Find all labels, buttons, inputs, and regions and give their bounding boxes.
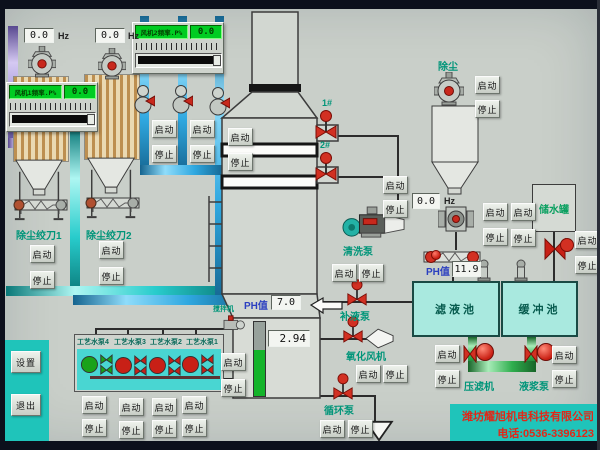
fan1-panel-value: 0.0 bbox=[64, 85, 96, 99]
buffer-tank: 缓冲池 bbox=[501, 281, 578, 337]
ph-sensor-dot bbox=[431, 250, 441, 260]
oxidation-fan-label: 氧化风机 bbox=[346, 348, 386, 363]
dust-hopper bbox=[430, 104, 482, 198]
filtrate-tank: 滤液池 bbox=[412, 281, 500, 337]
water-tank: 储水罐 bbox=[532, 184, 576, 232]
right-airlock-start-button[interactable]: 启动 bbox=[511, 203, 536, 221]
valve3-start-button[interactable]: 启动 bbox=[228, 128, 253, 146]
fan2-ruler bbox=[136, 43, 221, 50]
fan1-control-panel: 风机1频率.P% 0.0 bbox=[6, 82, 98, 132]
slurry-valve-icon bbox=[524, 345, 538, 363]
blower-icon-2 bbox=[98, 48, 126, 80]
fan1-panel-label: 风机1频率.P% bbox=[9, 85, 62, 99]
circulation-pump-start-button[interactable]: 启动 bbox=[320, 420, 345, 438]
company-name: 潍坊耀旭机电科技有限公司 bbox=[450, 409, 594, 426]
valve3-stop-button[interactable]: 停止 bbox=[228, 153, 253, 171]
screw-conveyor-icon-1 bbox=[11, 196, 69, 214]
fan-blade-icon bbox=[366, 328, 394, 349]
tower-ph-display: 7.0 bbox=[271, 295, 301, 310]
slurry-pump-label: 液浆泵 bbox=[519, 378, 549, 393]
flue-line-down bbox=[397, 135, 399, 210]
mixer-label: 搅拌机 bbox=[213, 304, 234, 314]
filtrate-tank-label: 滤液池 bbox=[435, 301, 477, 317]
process-pump3-label: 工艺水泵3 bbox=[114, 337, 146, 347]
slurry-pump-start-button[interactable]: 启动 bbox=[552, 346, 577, 364]
dust-frequency-display: 0.0 bbox=[412, 193, 440, 209]
valve2-start-button[interactable]: 启动 bbox=[190, 120, 215, 138]
dust-collector-stop-button[interactable]: 停止 bbox=[475, 100, 500, 118]
screw-conveyor-icon-2 bbox=[83, 194, 141, 212]
outlet2-label: 2# bbox=[320, 140, 330, 150]
right-conveyor-start-button[interactable]: 启动 bbox=[483, 203, 508, 221]
fan2-control-panel: 风机2频率.P% 0.0 bbox=[132, 22, 224, 74]
tower-ph-label: PH值 bbox=[244, 297, 268, 312]
filter-press-label: 压滤机 bbox=[464, 378, 494, 393]
filter-press-valve-icon bbox=[463, 345, 477, 363]
mixer-icon bbox=[222, 314, 246, 334]
slurry-pump-stop-button[interactable]: 停止 bbox=[552, 370, 577, 388]
dust-collector-label: 除尘 bbox=[438, 58, 458, 73]
circulation-pump-label: 循环泵 bbox=[324, 402, 354, 417]
flue-fan-stop-button[interactable]: 停止 bbox=[383, 200, 408, 218]
process-pump3-stop-button[interactable]: 停止 bbox=[119, 421, 144, 439]
process-pump-icon-1 bbox=[181, 354, 215, 375]
rotary-valve-icon bbox=[438, 206, 474, 232]
process-pump-icon-3 bbox=[114, 355, 148, 376]
dust-frequency-unit: Hz bbox=[444, 196, 455, 206]
oxidation-fan-stop-button[interactable]: 停止 bbox=[383, 365, 408, 383]
blower-icon-3 bbox=[434, 72, 464, 106]
process-pump2-start-button[interactable]: 启动 bbox=[152, 398, 177, 416]
fan1-frequency-unit: Hz bbox=[58, 31, 69, 41]
circulation-line-v bbox=[374, 395, 376, 422]
fan1-slider-handle[interactable] bbox=[87, 114, 95, 125]
circulation-pump-stop-button[interactable]: 停止 bbox=[348, 420, 373, 438]
bezel-left bbox=[0, 0, 5, 450]
oxidation-fan-start-button[interactable]: 启动 bbox=[356, 365, 381, 383]
water-tank-label: 储水罐 bbox=[539, 201, 569, 216]
flue-fan-start-button[interactable]: 启动 bbox=[383, 176, 408, 194]
filter-press-stop-button[interactable]: 停止 bbox=[435, 370, 460, 388]
filter-press-start-button[interactable]: 启动 bbox=[435, 345, 460, 363]
mixer-start-button[interactable]: 启动 bbox=[221, 353, 246, 371]
process-pump4-stop-button[interactable]: 停止 bbox=[82, 419, 107, 437]
company-phone: 电话:0536-3396123 bbox=[450, 426, 594, 443]
fan2-frequency-display: 0.0 bbox=[95, 28, 125, 43]
cleaning-pump-label: 清洗泵 bbox=[343, 243, 373, 258]
red-valve-icon-circulation bbox=[332, 373, 354, 401]
butterfly-valve-icon bbox=[544, 236, 574, 262]
valve1-start-button[interactable]: 启动 bbox=[152, 120, 177, 138]
process-pump4-label: 工艺水泵4 bbox=[77, 337, 109, 347]
dust-auger2-stop-button[interactable]: 停止 bbox=[99, 267, 124, 285]
valve1-stop-button[interactable]: 停止 bbox=[152, 145, 177, 163]
valve2-stop-button[interactable]: 停止 bbox=[190, 145, 215, 163]
red-valve-icon-refill bbox=[346, 279, 368, 307]
cyan-pipe-vertical-1 bbox=[70, 128, 80, 296]
hopper-conveyor-1 bbox=[12, 158, 70, 230]
process-pump1-label: 工艺水泵1 bbox=[186, 337, 218, 347]
refill-pump-stop-button[interactable]: 停止 bbox=[359, 264, 384, 282]
red-valve-icon-2 bbox=[314, 152, 338, 182]
dust-collector-start-button[interactable]: 启动 bbox=[475, 76, 500, 94]
right-conveyor-stop-button[interactable]: 停止 bbox=[483, 228, 508, 246]
fan1-slider[interactable] bbox=[9, 112, 96, 127]
process-pump3-start-button[interactable]: 启动 bbox=[119, 398, 144, 416]
right-ph-label: PH值 bbox=[426, 263, 450, 278]
bezel-top bbox=[0, 0, 600, 9]
fan1-ruler bbox=[10, 103, 95, 110]
process-pump4-start-button[interactable]: 启动 bbox=[82, 396, 107, 414]
fan2-panel-value: 0.0 bbox=[190, 25, 222, 39]
mixer-stop-button[interactable]: 停止 bbox=[221, 379, 246, 397]
fan2-slider[interactable] bbox=[135, 53, 222, 68]
exit-button[interactable]: 退出 bbox=[11, 394, 41, 416]
tank-sensor-icon-2 bbox=[513, 258, 529, 282]
bezel-bottom bbox=[0, 441, 600, 450]
blower-icon-1 bbox=[28, 46, 56, 78]
process-pump2-stop-button[interactable]: 停止 bbox=[152, 420, 177, 438]
filter-press-pump-icon bbox=[476, 343, 494, 361]
fan2-frequency-unit: Hz bbox=[128, 31, 139, 41]
hopper-conveyor-2 bbox=[84, 156, 142, 228]
process-pump2-label: 工艺水泵2 bbox=[150, 337, 182, 347]
process-pump1-stop-button[interactable]: 停止 bbox=[182, 419, 207, 437]
process-pump-icon-2 bbox=[148, 355, 182, 376]
flue-line-1 bbox=[337, 135, 399, 137]
fan2-slider-handle[interactable] bbox=[213, 55, 221, 66]
right-ph-display: 11.9 bbox=[452, 261, 481, 277]
dust-auger2-start-button[interactable]: 启动 bbox=[99, 241, 124, 259]
hmi-scada-screen: 0.0 Hz 0.0 Hz 风机2频率.P% 0.0 风机1频率.P% 0.0 … bbox=[0, 0, 600, 450]
dust-auger1-label: 除尘绞刀1 bbox=[16, 227, 62, 242]
right-airlock-stop-button[interactable]: 停止 bbox=[511, 229, 536, 247]
tower-level-display: 2.94 bbox=[268, 330, 310, 347]
dust-auger2-label: 除尘绞刀2 bbox=[86, 227, 132, 242]
ball-valve-icon-2 bbox=[171, 84, 193, 114]
refill-pump-label: 补液泵 bbox=[340, 308, 370, 323]
tower-level-bar bbox=[253, 321, 266, 397]
process-pump-icon-4 bbox=[80, 354, 114, 375]
settings-button[interactable]: 设置 bbox=[11, 351, 41, 373]
dust-auger1-stop-button[interactable]: 停止 bbox=[30, 271, 55, 289]
ball-valve-icon-3 bbox=[208, 86, 230, 116]
buffer-tank-label: 缓冲池 bbox=[519, 301, 561, 317]
fan2-panel-label: 风机2频率.P% bbox=[135, 25, 188, 39]
airlock-drop-line bbox=[455, 232, 457, 250]
red-valve-icon-1 bbox=[314, 110, 338, 140]
fan1-frequency-display: 0.0 bbox=[24, 28, 54, 43]
dust-auger1-start-button[interactable]: 启动 bbox=[30, 245, 55, 263]
outlet1-label: 1# bbox=[322, 98, 332, 108]
process-pump-pipe bbox=[90, 376, 220, 379]
ball-valve-icon-1 bbox=[133, 84, 155, 114]
process-pump1-start-button[interactable]: 启动 bbox=[182, 396, 207, 414]
refill-pump-start-button[interactable]: 启动 bbox=[332, 264, 357, 282]
